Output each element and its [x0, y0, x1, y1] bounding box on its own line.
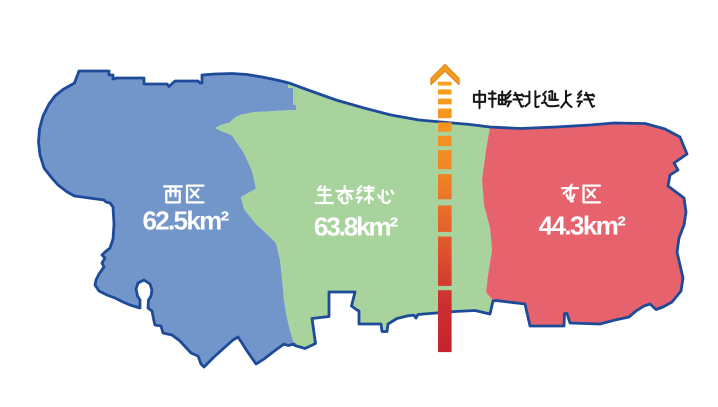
- svg-text:62.5km²: 62.5km²: [143, 206, 230, 236]
- svg-text:44.3km²: 44.3km²: [539, 211, 627, 241]
- svg-text:63.8km²: 63.8km²: [314, 212, 399, 242]
